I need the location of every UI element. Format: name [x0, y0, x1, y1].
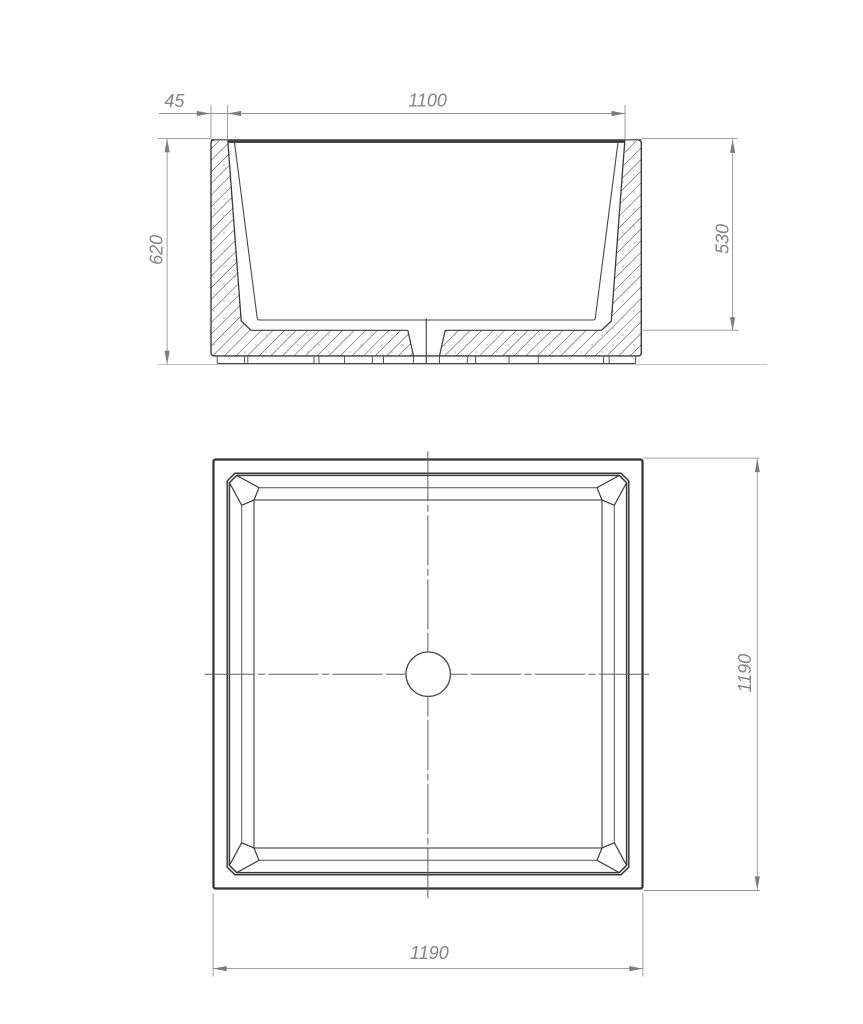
svg-text:1190: 1190 [735, 654, 755, 693]
svg-text:620: 620 [147, 235, 167, 265]
svg-text:1100: 1100 [408, 91, 447, 111]
svg-text:45: 45 [164, 91, 185, 111]
svg-text:1190: 1190 [410, 943, 449, 963]
svg-text:530: 530 [713, 224, 733, 254]
